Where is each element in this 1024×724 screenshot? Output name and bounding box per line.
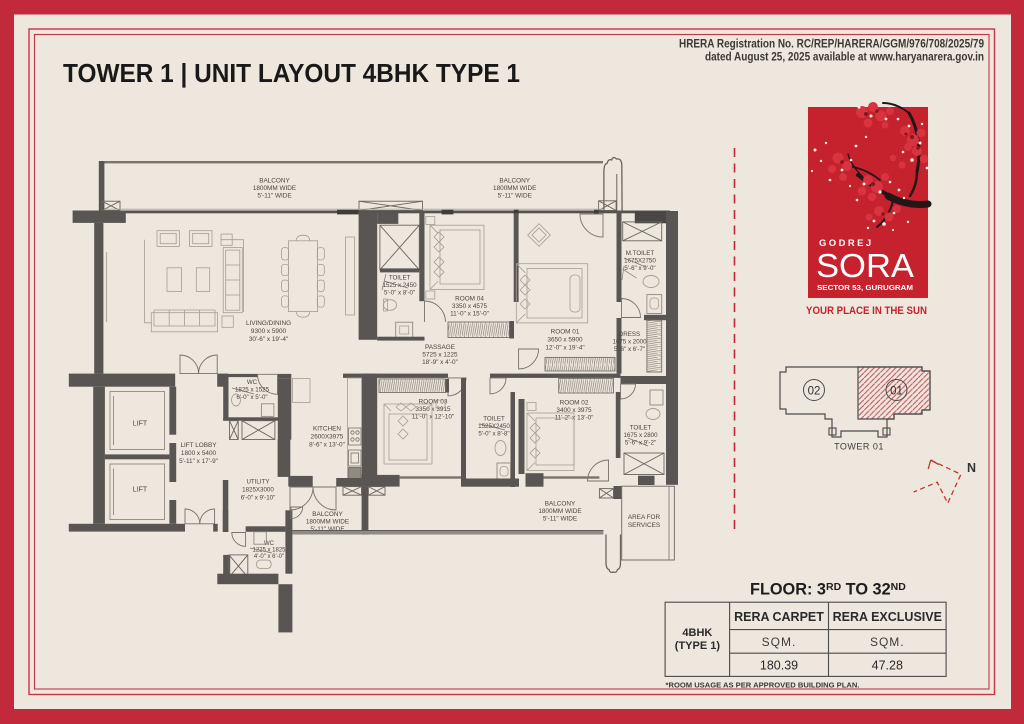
svg-text:1525X2450: 1525X2450 [478, 423, 510, 430]
svg-text:TOILET: TOILET [630, 425, 652, 432]
svg-text:BALCONY: BALCONY [545, 501, 576, 508]
svg-text:LIFT: LIFT [133, 421, 148, 428]
svg-text:1825 x 1525: 1825 x 1525 [235, 387, 270, 394]
svg-text:4'-0" x 6'-0": 4'-0" x 6'-0" [254, 554, 284, 560]
svg-text:*ROOM USAGE AS PER APPROVED BU: *ROOM USAGE AS PER APPROVED BUILDING PLA… [666, 681, 860, 690]
svg-text:SQM.: SQM. [762, 635, 797, 649]
svg-text:1800 x 5400: 1800 x 5400 [181, 450, 217, 457]
svg-text:6'-0" x 9'-10": 6'-0" x 9'-10" [241, 495, 276, 502]
svg-text:5'-6" x 6'-7": 5'-6" x 6'-7" [614, 346, 645, 353]
svg-text:RERA EXCLUSIVE: RERA EXCLUSIVE [833, 610, 942, 624]
svg-text:1800MM WIDE: 1800MM WIDE [493, 185, 536, 192]
svg-text:3350 x 3915: 3350 x 3915 [415, 406, 451, 413]
svg-text:1675X2750: 1675X2750 [624, 258, 656, 265]
svg-text:SERVICES: SERVICES [628, 522, 660, 529]
svg-text:(TYPE 1): (TYPE 1) [675, 640, 721, 652]
svg-text:TOILET: TOILET [389, 275, 411, 282]
svg-text:ROOM 02: ROOM 02 [560, 400, 589, 407]
svg-text:SORA: SORA [816, 247, 914, 284]
svg-text:1825X3000: 1825X3000 [242, 487, 274, 494]
svg-text:SECTOR 53, GURUGRAM: SECTOR 53, GURUGRAM [817, 283, 913, 292]
svg-text:5'-0" x 8'-8": 5'-0" x 8'-8" [478, 431, 509, 438]
svg-text:18'-9" x 4'-0": 18'-9" x 4'-0" [422, 359, 458, 366]
svg-text:5'-11" WIDE: 5'-11" WIDE [498, 193, 532, 200]
svg-text:6'-0" x 5'-0": 6'-0" x 5'-0" [236, 394, 267, 401]
svg-text:AREA FOR: AREA FOR [628, 514, 661, 521]
svg-text:1800MM WIDE: 1800MM WIDE [538, 508, 581, 515]
svg-text:TOWER 1 | UNIT LAYOUT 4BHK TYP: TOWER 1 | UNIT LAYOUT 4BHK TYPE 1 [63, 60, 520, 88]
svg-text:TOILET: TOILET [483, 416, 505, 423]
svg-text:8'-6" x 13'-0": 8'-6" x 13'-0" [309, 442, 345, 449]
svg-text:RERA CARPET: RERA CARPET [734, 610, 824, 624]
svg-text:DRESS: DRESS [619, 331, 640, 338]
svg-text:ROOM 03: ROOM 03 [419, 399, 448, 406]
svg-text:LIFT: LIFT [133, 487, 148, 494]
svg-text:5'-11" WIDE: 5'-11" WIDE [257, 193, 291, 200]
svg-text:ROOM 01: ROOM 01 [551, 329, 580, 336]
svg-text:1800MM WIDE: 1800MM WIDE [253, 185, 296, 192]
svg-text:5725 x 1225: 5725 x 1225 [422, 352, 458, 359]
svg-text:BALCONY: BALCONY [499, 178, 530, 185]
svg-text:ROOM 04: ROOM 04 [455, 296, 484, 303]
svg-text:5'-6" x 9'-2": 5'-6" x 9'-2" [625, 440, 656, 447]
svg-text:LIFT LOBBY: LIFT LOBBY [180, 442, 217, 449]
svg-text:KITCHEN: KITCHEN [313, 426, 341, 433]
svg-text:3650 x 5900: 3650 x 5900 [547, 337, 583, 344]
svg-text:3350 x 4575: 3350 x 4575 [452, 303, 488, 310]
svg-text:SQM.: SQM. [870, 635, 905, 649]
svg-text:LIVING/DINING: LIVING/DINING [246, 320, 291, 327]
svg-text:5'-6" x 9'-0": 5'-6" x 9'-0" [624, 265, 655, 272]
svg-text:2600X3975: 2600X3975 [311, 434, 344, 441]
svg-text:9300 x 5900: 9300 x 5900 [251, 328, 287, 335]
svg-text:1675 x 2800: 1675 x 2800 [623, 432, 658, 439]
svg-text:1675 x 2000: 1675 x 2000 [612, 339, 647, 346]
svg-text:1800MM WIDE: 1800MM WIDE [306, 519, 349, 526]
svg-text:BALCONY: BALCONY [259, 178, 290, 185]
svg-text:11'-0" x 12'-10": 11'-0" x 12'-10" [412, 414, 454, 421]
svg-text:BALCONY: BALCONY [312, 511, 343, 518]
svg-text:5'-11" WIDE: 5'-11" WIDE [543, 516, 577, 523]
svg-text:4BHK: 4BHK [682, 627, 712, 639]
svg-text:5'-11" x 17'-9": 5'-11" x 17'-9" [179, 458, 218, 465]
svg-text:dated August 25, 2025 availabl: dated August 25, 2025 available at www.h… [705, 50, 984, 64]
svg-text:180.39: 180.39 [760, 659, 798, 673]
svg-text:01: 01 [890, 386, 903, 398]
svg-text:12'-0" x 19'-4": 12'-0" x 19'-4" [545, 345, 584, 352]
svg-text:30'-6" x 19'-4": 30'-6" x 19'-4" [249, 336, 288, 343]
svg-text:PASSAGE: PASSAGE [425, 344, 455, 351]
svg-text:M.TOILET: M.TOILET [626, 250, 655, 257]
svg-text:HRERA Registration No. RC/REP/: HRERA Registration No. RC/REP/HARERA/GGM… [679, 37, 984, 51]
svg-text:YOUR PLACE IN THE SUN: YOUR PLACE IN THE SUN [806, 305, 927, 317]
svg-text:5'-0" x 8'-0": 5'-0" x 8'-0" [384, 290, 415, 297]
svg-text:N: N [967, 461, 976, 475]
svg-text:UTILITY: UTILITY [246, 479, 269, 486]
svg-text:02: 02 [808, 386, 821, 398]
svg-text:11'-0" x 15'-0": 11'-0" x 15'-0" [450, 311, 489, 318]
svg-text:1225 x 1825: 1225 x 1825 [252, 548, 286, 554]
svg-text:TOWER 01: TOWER 01 [834, 442, 884, 452]
svg-text:WC: WC [247, 379, 258, 386]
svg-text:47.28: 47.28 [872, 659, 903, 673]
